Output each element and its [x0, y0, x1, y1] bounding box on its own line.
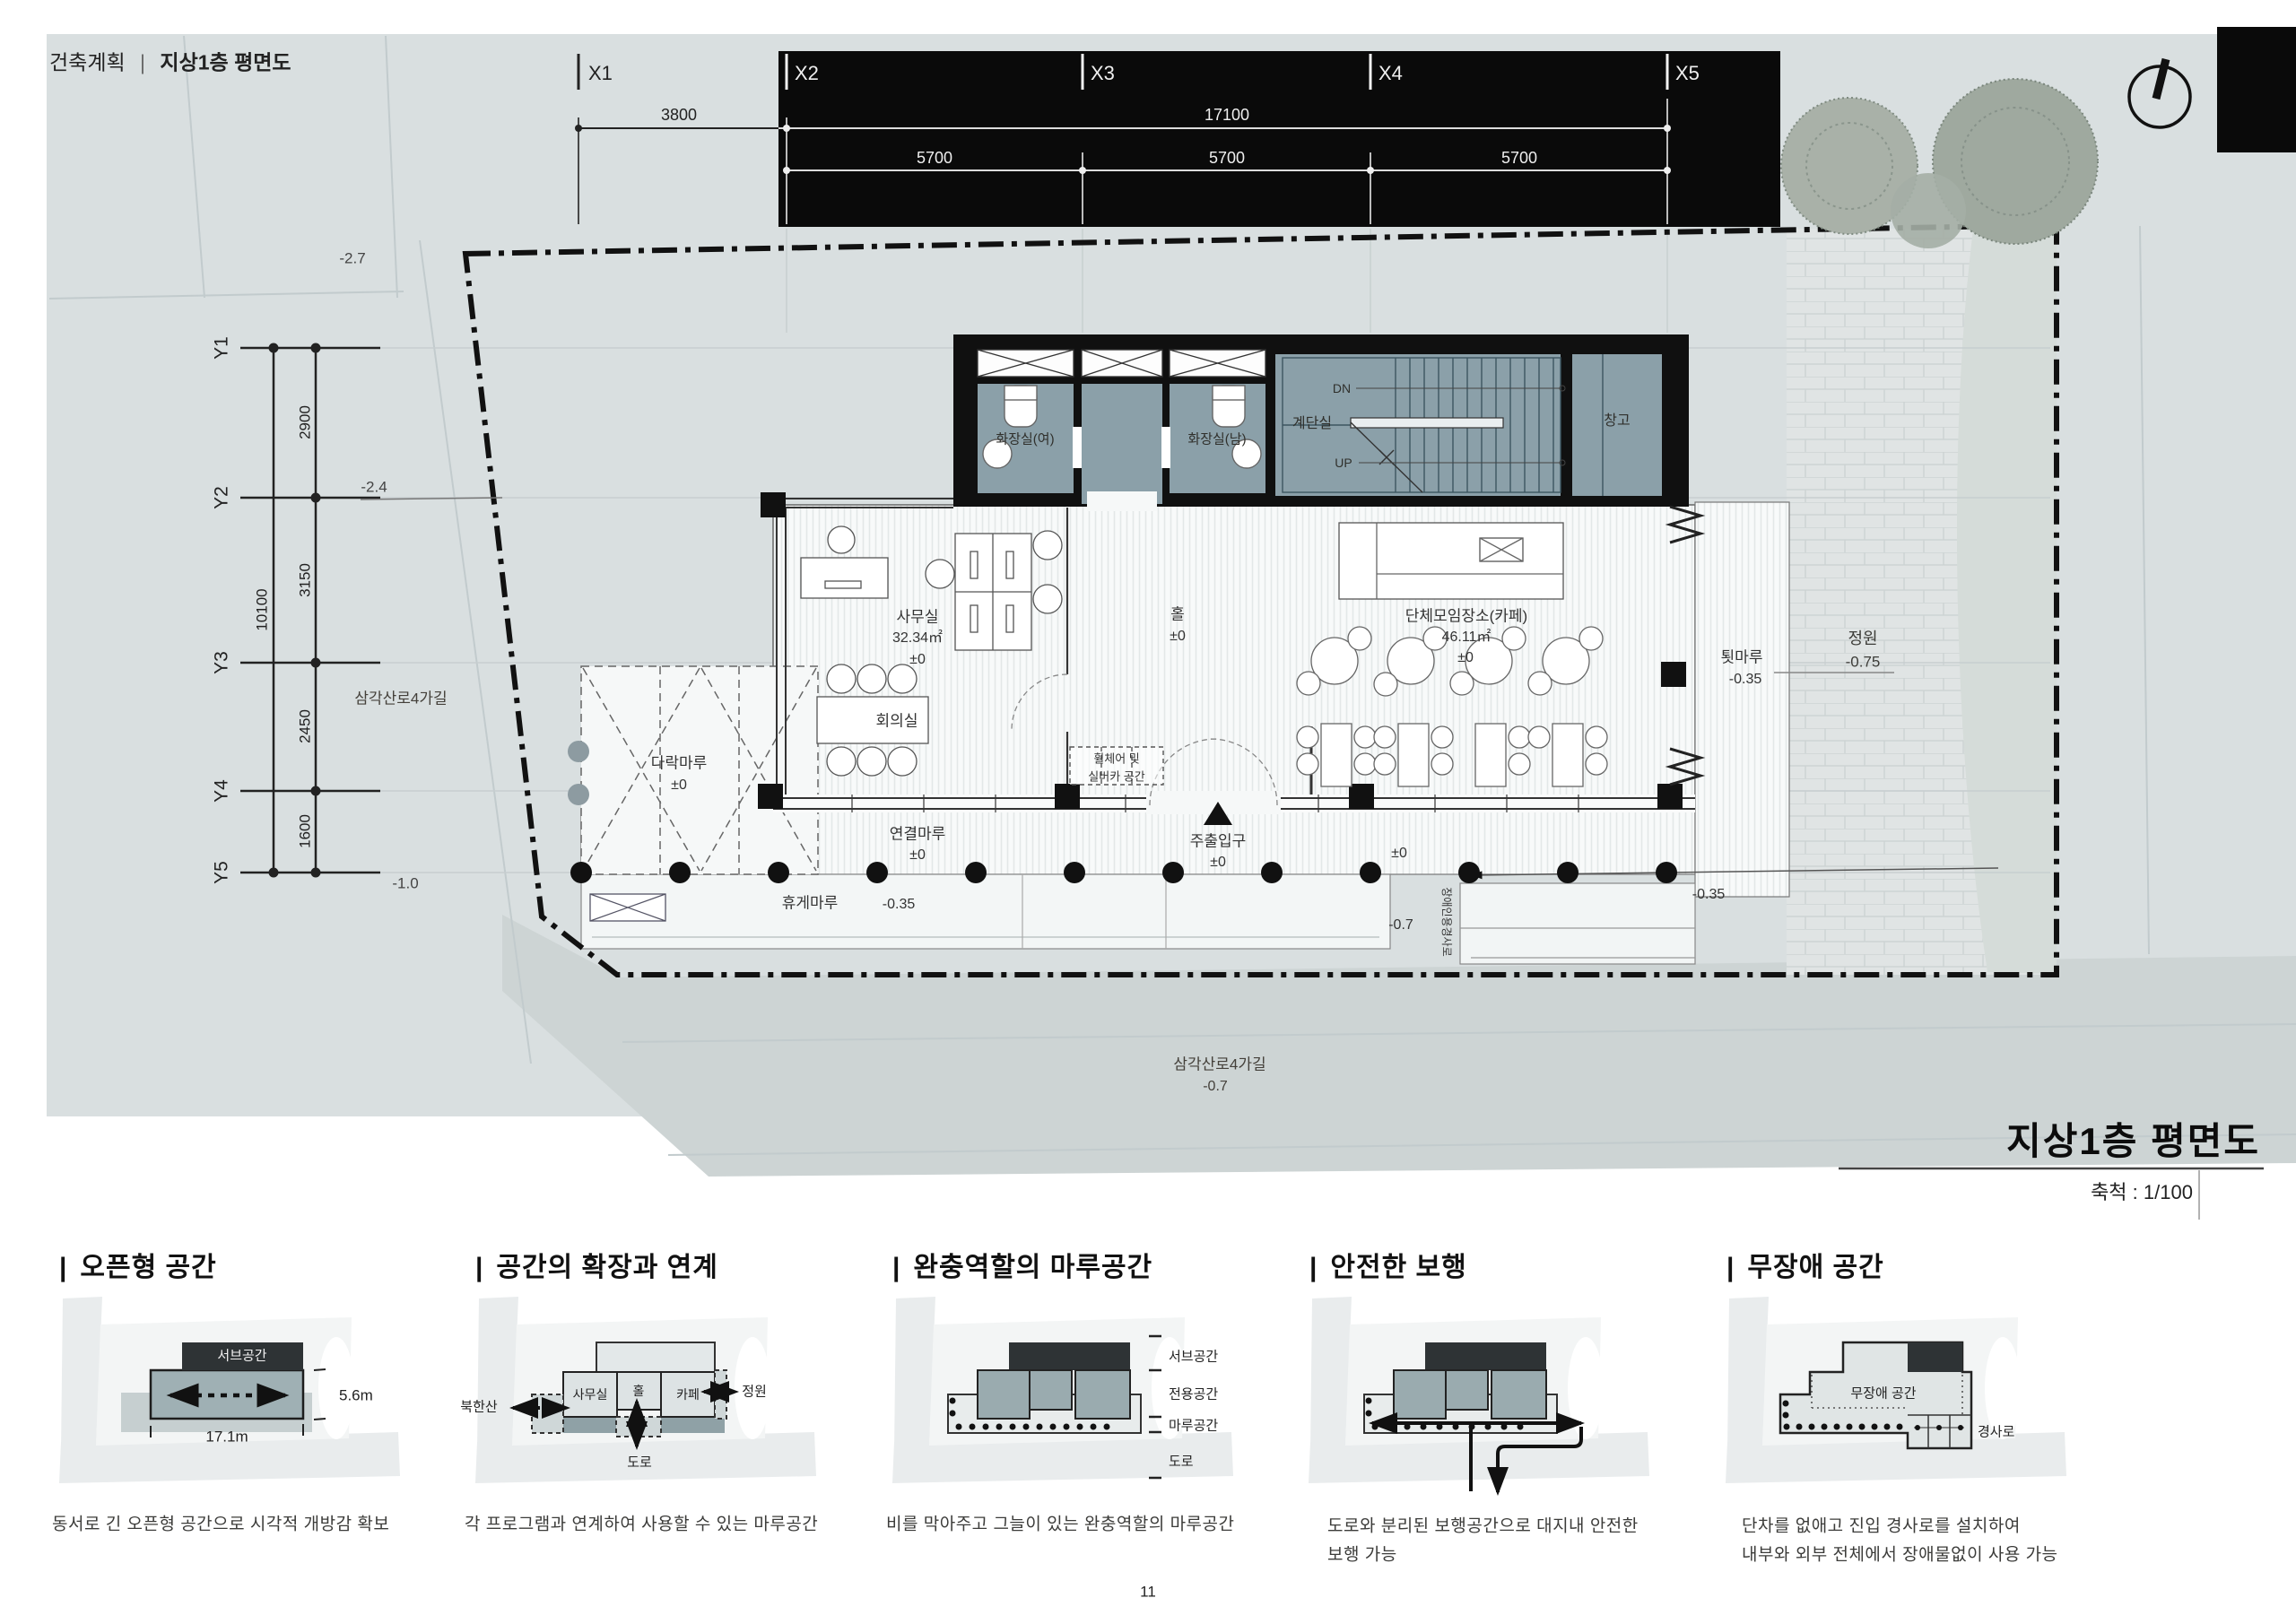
dim-3800: 3800 — [661, 107, 697, 123]
diagram1-caption: 동서로 긴 오픈형 공간으로 시각적 개방감 확보 — [52, 1516, 389, 1533]
grid-label-y5: Y5 — [213, 861, 231, 884]
wheelchair-label-2: 실버카 공간 — [1088, 771, 1144, 783]
diagram1-width: 17.1m — [205, 1429, 248, 1445]
plan-scale: 축척 : 1/100 — [2091, 1183, 2193, 1203]
diagram4-title: |안전한 보행 — [1309, 1255, 1467, 1281]
plan-title: 지상1층 평면도 — [1839, 1123, 2260, 1160]
diagram1-height: 5.6m — [339, 1388, 373, 1403]
header-title: 지상1층 평면도 — [160, 51, 291, 74]
diagram3-title: |완충역할의 마루공간 — [892, 1255, 1152, 1281]
room-meeting: 회의실 — [876, 714, 918, 729]
diagram3-label-maru: 마루공간 — [1169, 1420, 1218, 1433]
diagram4-caption-2: 보행 가능 — [1327, 1547, 1397, 1564]
diagram2-hall: 홀 — [633, 1385, 645, 1397]
toen-deck — [1695, 502, 1789, 897]
drawing-sheet: 건축계획 | 지상1층 평면도 X1 X2 X3 X4 X5 3800 1710… — [0, 0, 2296, 1624]
deck-connect: 연결마루 — [890, 827, 946, 842]
diagram3-label-sub: 서브공간 — [1169, 1350, 1218, 1364]
deck-attic-level: ±0 — [671, 778, 687, 793]
grid-label-y1: Y1 — [213, 336, 231, 360]
deck-toen-level: -0.35 — [1729, 673, 1761, 687]
diagram5-title: |무장애 공간 — [1726, 1255, 1884, 1281]
diagram5-ramp-label: 경사로 — [1978, 1426, 2014, 1439]
room-hall: 홀 — [1170, 607, 1185, 622]
walk-level: ±0 — [1391, 847, 1407, 861]
street-bottom-label: 삼각산로4가길 — [1173, 1057, 1265, 1073]
garden-level: -0.75 — [1846, 655, 1881, 670]
diagram2-garden: 정원 — [742, 1385, 767, 1399]
dim-5700-c: 5700 — [1501, 150, 1537, 166]
corner-black-block — [2217, 27, 2296, 152]
stair-up: UP — [1335, 456, 1352, 469]
dim-3150: 3150 — [298, 563, 313, 597]
dimension-band — [778, 51, 1780, 227]
grid-label-x4: X4 — [1378, 64, 1403, 83]
level-minus24: -2.4 — [361, 480, 387, 495]
grid-label-y3: Y3 — [213, 651, 231, 674]
room-office-level: ±0 — [909, 653, 926, 667]
diagram2-road: 도로 — [627, 1456, 652, 1470]
garden-label: 정원 — [1848, 630, 1877, 647]
dim-17100: 17100 — [1205, 107, 1249, 123]
diagram3-label-private: 전용공간 — [1169, 1388, 1218, 1402]
street-left-label: 삼각산로4가길 — [354, 691, 447, 707]
diagram2-office: 사무실 — [573, 1388, 608, 1401]
deck-rest-level: -0.35 — [883, 898, 915, 912]
deck-toen: 툇마루 — [1721, 650, 1763, 665]
street-bottom-level: -0.7 — [1203, 1080, 1228, 1094]
diagram5-caption-1: 단차를 없애고 진입 경사로를 설치하여 — [1742, 1518, 2021, 1535]
entrance-level: ±0 — [1210, 855, 1226, 870]
level-minus10: -1.0 — [392, 876, 418, 891]
room-cafe-level: ±0 — [1457, 651, 1474, 665]
accessible-ramp — [1460, 883, 1695, 964]
diagram1-sub-label: 서브공간 — [217, 1350, 266, 1363]
page-number: 11 — [1140, 1585, 1156, 1600]
grid-label-x2: X2 — [795, 64, 819, 83]
diagram2-cafe: 카페 — [676, 1388, 700, 1401]
grid-label-x1: X1 — [588, 64, 613, 83]
grid-label-x3: X3 — [1091, 64, 1115, 83]
door-gap — [1161, 427, 1170, 468]
road-level: -0.7 — [1388, 918, 1413, 933]
lobby-opening — [1087, 491, 1157, 511]
wheelchair-label-1: 휠체어 및 — [1093, 753, 1139, 765]
diagram5-inner-label: 무장애 공간 — [1850, 1387, 1916, 1401]
room-cafe-area: 46.11㎡ — [1442, 630, 1492, 645]
room-toilet-women: 화장실(여) — [996, 433, 1054, 447]
dim-2900: 2900 — [298, 405, 313, 439]
room-office: 사무실 — [897, 610, 939, 625]
dim-2450: 2450 — [298, 709, 313, 743]
room-toilet-men: 화장실(남) — [1187, 433, 1246, 447]
dim-5700-b: 5700 — [1209, 150, 1245, 166]
diagram5-caption-2: 내부와 외부 전체에서 장애물없이 사용 가능 — [1742, 1547, 2058, 1564]
deck-rest: 휴게마루 — [782, 896, 839, 911]
ramp-vertical-label: 장애인용경사로 — [1441, 887, 1452, 956]
deck-attic: 다락마루 — [651, 756, 708, 771]
diagram2-title: |공간의 확장과 연계 — [475, 1255, 718, 1281]
stair-dn: DN — [1333, 382, 1351, 395]
diagram2-mountain: 북한산 — [460, 1401, 497, 1414]
floor-plan-drawing — [0, 0, 2296, 1624]
header-divider: | — [131, 51, 154, 74]
entrance-label: 주출입구 — [1190, 834, 1247, 849]
toilet-lobby — [1082, 384, 1162, 504]
sheet-header: 건축계획 | 지상1층 평면도 — [49, 53, 291, 74]
door-gap — [1073, 427, 1082, 468]
grid-label-x5: X5 — [1675, 64, 1700, 83]
diagram3-caption: 비를 막아주고 그늘이 있는 완충역할의 마루공간 — [886, 1516, 1235, 1533]
dim-1600: 1600 — [298, 814, 313, 848]
room-storage: 창고 — [1604, 414, 1630, 429]
room-stair: 계단실 — [1292, 417, 1332, 431]
deck-connect-level: ±0 — [909, 848, 926, 863]
dim-5700-a: 5700 — [917, 150, 952, 166]
diagram1-title: |오픈형 공간 — [59, 1255, 217, 1281]
room-office-area: 32.34㎡ — [892, 631, 943, 646]
level-minus27: -2.7 — [339, 251, 365, 266]
diagram3-label-road: 도로 — [1169, 1455, 1194, 1469]
walk-level-right: -0.35 — [1692, 888, 1725, 902]
dim-10100: 10100 — [255, 588, 270, 630]
grid-label-y2: Y2 — [213, 486, 231, 509]
diagram4-caption-1: 도로와 분리된 보행공간으로 대지내 안전한 — [1327, 1518, 1639, 1535]
vent-boxes — [978, 350, 1265, 377]
room-hall-level: ±0 — [1170, 630, 1186, 644]
room-cafe: 단체모임장소(카페) — [1405, 609, 1527, 624]
header-category: 건축계획 — [49, 51, 126, 74]
grid-label-y4: Y4 — [213, 779, 231, 803]
stair-rail — [1351, 418, 1503, 428]
diagram2-caption: 각 프로그램과 연계하여 사용할 수 있는 마루공간 — [465, 1516, 818, 1533]
